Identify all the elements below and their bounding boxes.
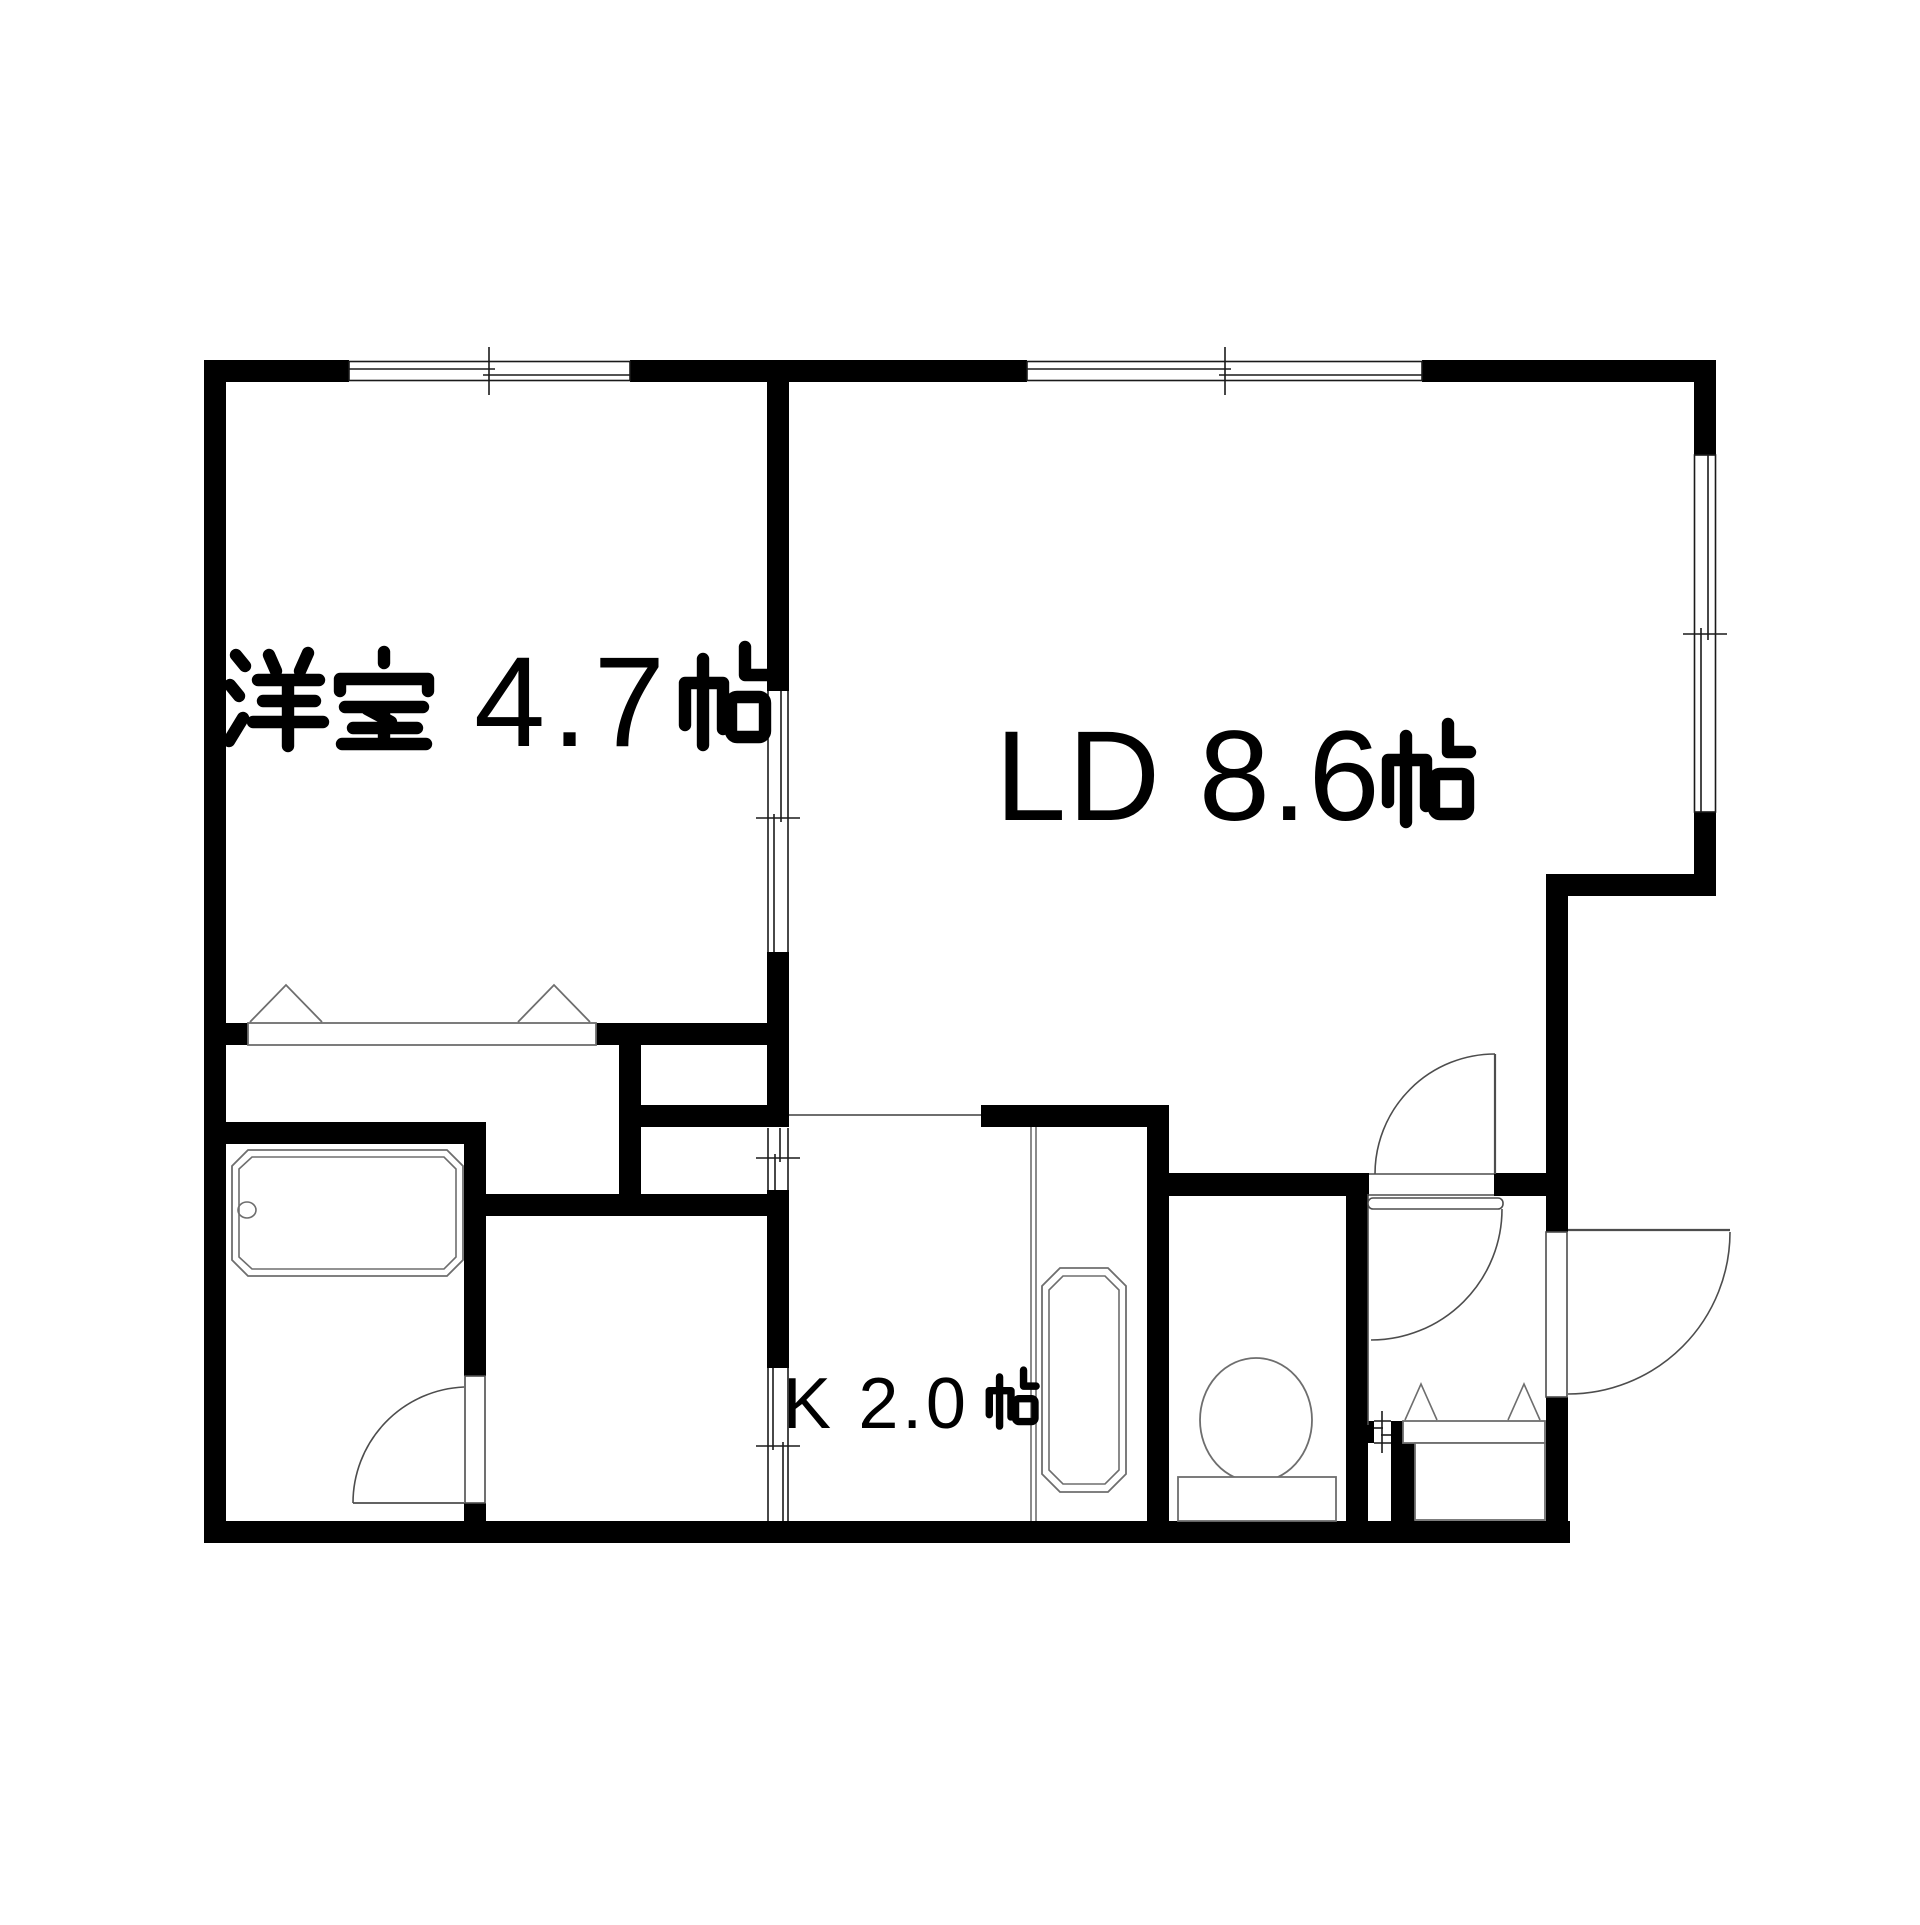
svg-text:LD 8.6: LD 8.6 — [995, 705, 1381, 848]
svg-text:4.7: 4.7 — [474, 631, 671, 774]
svg-text:K 2.0: K 2.0 — [783, 1364, 970, 1444]
